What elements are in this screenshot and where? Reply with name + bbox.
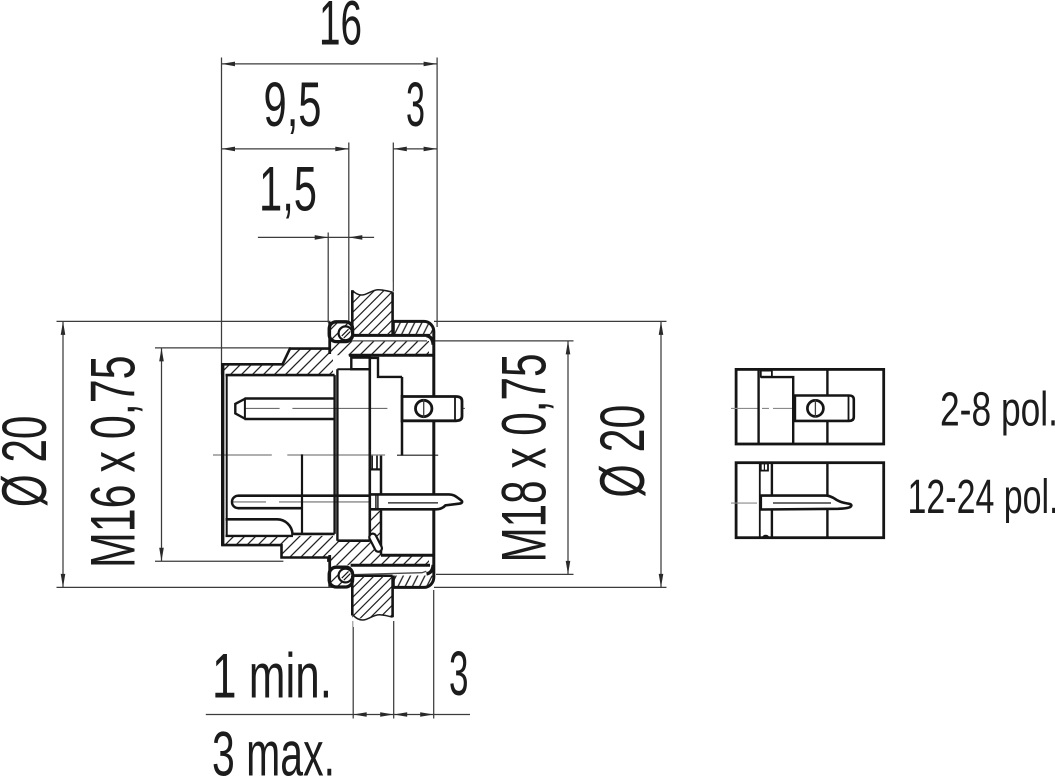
- svg-text:3: 3: [406, 69, 425, 140]
- svg-text:1 min.: 1 min.: [212, 641, 332, 712]
- svg-text:12-24 pol.: 12-24 pol.: [908, 469, 1055, 523]
- svg-text:9,5: 9,5: [264, 71, 322, 141]
- svg-text:M16 x 0,75: M16 x 0,75: [78, 356, 148, 568]
- svg-text:16: 16: [319, 0, 362, 59]
- svg-text:Ø 20: Ø 20: [588, 405, 658, 498]
- svg-text:1,5: 1,5: [259, 155, 317, 225]
- svg-text:3: 3: [449, 638, 468, 708]
- svg-text:3 max.: 3 max.: [212, 720, 335, 777]
- svg-text:M18 x 0,75: M18 x 0,75: [489, 354, 559, 563]
- svg-text:2-8 pol.: 2-8 pol.: [940, 382, 1055, 436]
- svg-text:Ø 20: Ø 20: [0, 416, 60, 507]
